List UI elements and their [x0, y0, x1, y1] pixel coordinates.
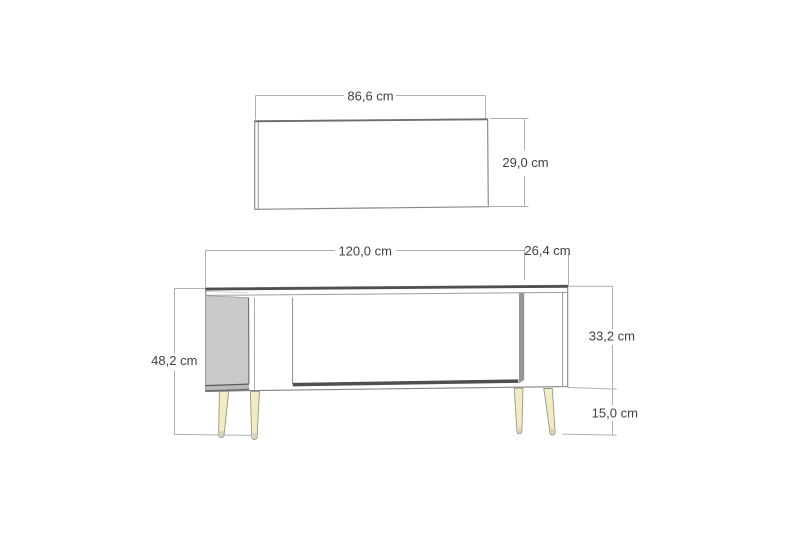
svg-text:86,6 cm: 86,6 cm	[347, 89, 393, 104]
svg-text:26,4 cm: 26,4 cm	[524, 243, 570, 258]
svg-text:48,2 cm: 48,2 cm	[151, 353, 197, 368]
svg-text:120,0 cm: 120,0 cm	[338, 243, 391, 258]
svg-text:15,0 cm: 15,0 cm	[592, 405, 638, 420]
svg-text:33,2 cm: 33,2 cm	[589, 329, 635, 344]
svg-text:29,0 cm: 29,0 cm	[502, 155, 548, 170]
